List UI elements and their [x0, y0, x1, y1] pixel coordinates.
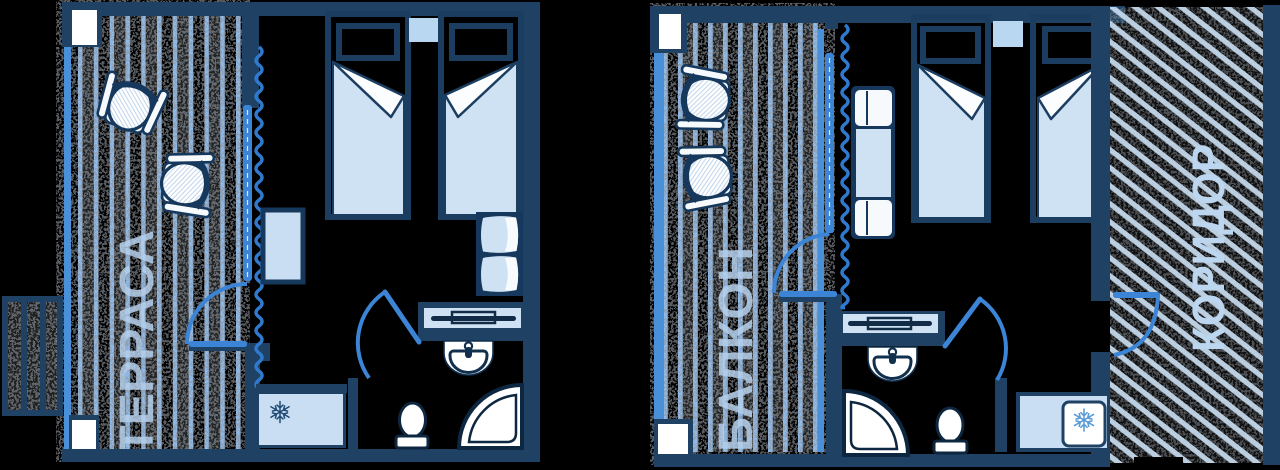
- svg-text:БАЛКОН: БАЛКОН: [710, 247, 763, 452]
- svg-text:ТЕРРАСА: ТЕРРАСА: [111, 230, 164, 455]
- svg-text:КОРИДОР: КОРИДОР: [1183, 144, 1234, 352]
